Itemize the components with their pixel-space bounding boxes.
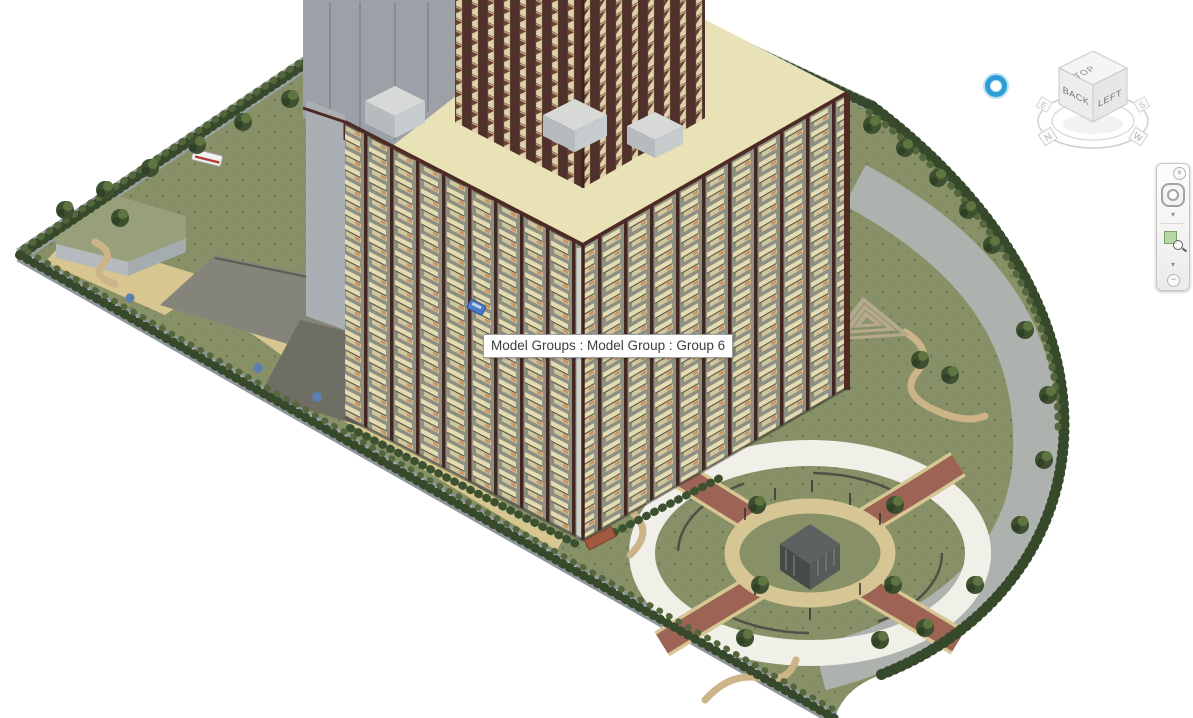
revit-3d-view-canvas[interactable]: Model Groups : Model Group : Group 6 N W… — [0, 0, 1193, 718]
navbar-collapse-button[interactable]: − — [1167, 274, 1180, 287]
tree — [884, 576, 902, 594]
viewcube-cube[interactable]: TOP BACK LEFT — [1059, 51, 1127, 122]
tree — [281, 90, 299, 108]
navbar-close-button[interactable]: × — [1173, 167, 1186, 180]
tree — [911, 351, 929, 369]
tree — [983, 236, 1001, 254]
tree — [863, 116, 881, 134]
tree — [929, 169, 947, 187]
tree — [56, 201, 74, 219]
tree — [1035, 451, 1053, 469]
zoom-dropdown-caret[interactable]: ▾ — [1157, 261, 1189, 269]
tree — [234, 113, 252, 131]
model-scene[interactable] — [0, 0, 1193, 718]
zoom-region-button[interactable] — [1164, 231, 1182, 249]
tree — [736, 629, 754, 647]
navbar-divider — [1161, 223, 1183, 224]
navigation-bar[interactable]: × ▾ ▾ − — [1156, 163, 1190, 291]
tree — [141, 159, 159, 177]
tree — [959, 201, 977, 219]
element-tooltip: Model Groups : Model Group : Group 6 — [483, 334, 733, 358]
tree — [1011, 516, 1029, 534]
tree — [748, 496, 766, 514]
tree — [188, 136, 206, 154]
tree — [896, 139, 914, 157]
tree — [96, 181, 114, 199]
tree — [966, 576, 984, 594]
concrete-core-podium — [306, 100, 345, 330]
magnifier-handle — [1182, 248, 1187, 253]
tree — [941, 366, 959, 384]
tree — [1016, 321, 1034, 339]
compass-tab-south[interactable]: S — [1134, 97, 1150, 113]
tree — [111, 209, 129, 227]
busy-cursor-ring — [985, 75, 1007, 97]
steering-wheel-dropdown-caret[interactable]: ▾ — [1157, 211, 1189, 219]
compass-tab-east[interactable]: E — [1036, 97, 1052, 113]
tree — [871, 631, 889, 649]
tree — [1039, 386, 1057, 404]
viewcube[interactable]: N W E S TOP BACK LEFT — [1030, 25, 1180, 160]
tree — [916, 619, 934, 637]
steering-wheel-icon[interactable] — [1161, 183, 1185, 207]
steering-wheel-hub — [1167, 189, 1179, 201]
tree — [751, 576, 769, 594]
tree — [886, 496, 904, 514]
